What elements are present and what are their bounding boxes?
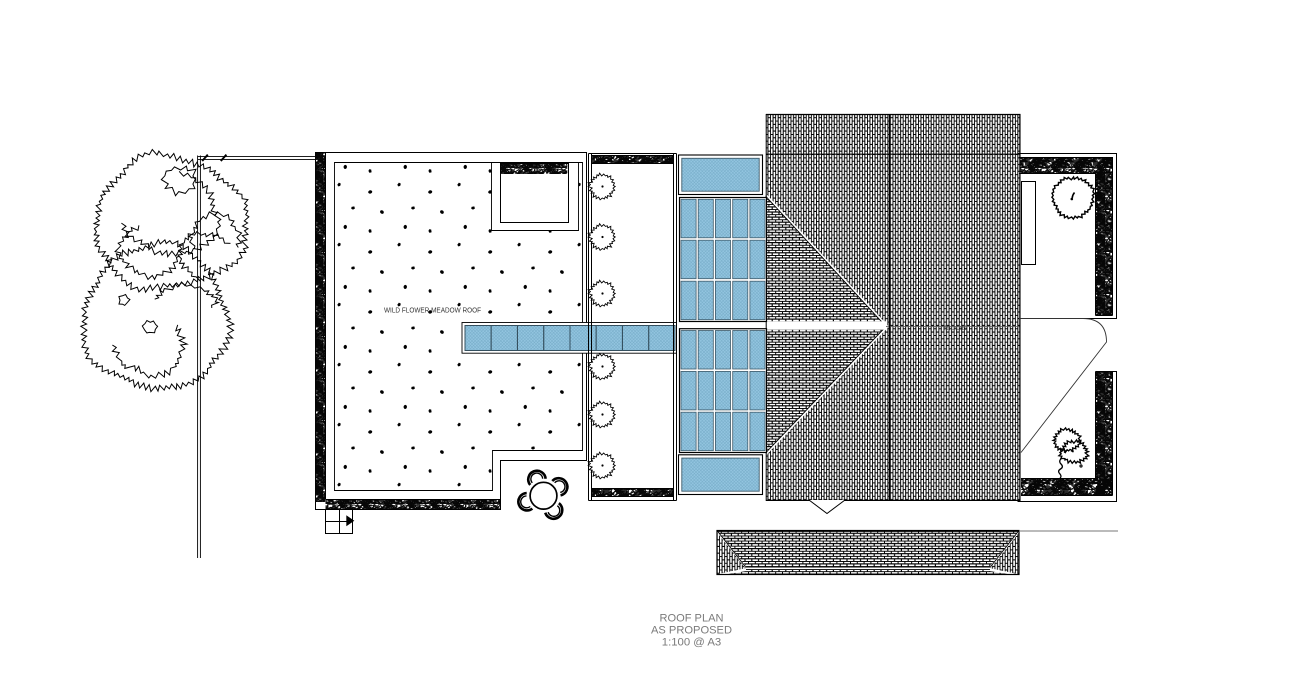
svg-text:ROOF PLAN: ROOF PLAN bbox=[660, 613, 724, 625]
svg-text:AS PROPOSED: AS PROPOSED bbox=[651, 625, 732, 637]
svg-text:WILD FLOWER MEADOW ROOF: WILD FLOWER MEADOW ROOF bbox=[384, 307, 481, 314]
svg-text:1:100 @ A3: 1:100 @ A3 bbox=[662, 637, 722, 649]
svg-text:RIDGE: RIDGE bbox=[944, 325, 968, 332]
